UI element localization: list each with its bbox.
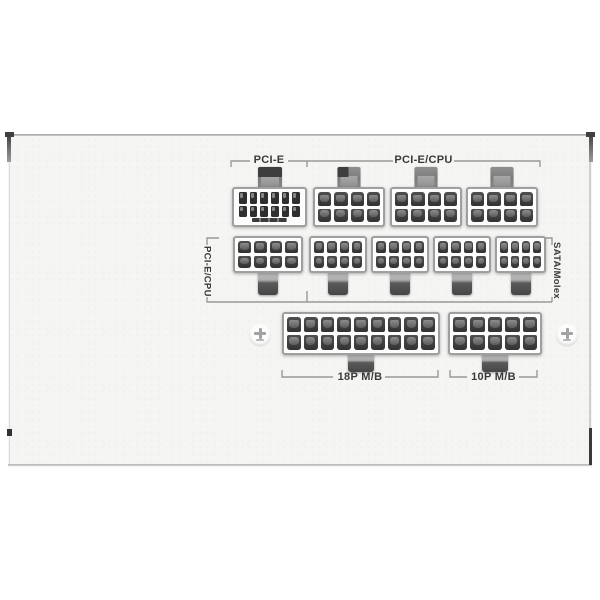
pin-socket <box>337 317 351 332</box>
pin-socket <box>520 209 533 223</box>
pin-socket <box>376 241 386 253</box>
pcie-12pin-socket-latch <box>258 167 282 188</box>
pin-socket <box>395 209 408 223</box>
pin-socket <box>470 335 484 350</box>
pcie-12pin-socket-body <box>232 187 307 227</box>
pin-socket <box>327 241 337 253</box>
pin-socket <box>371 335 385 350</box>
mb-10p-socket <box>448 312 542 355</box>
pin-socket <box>389 241 399 253</box>
pin-socket <box>404 335 418 350</box>
sata-molex-8pin-socket-1-body <box>309 236 367 273</box>
sata-molex-8pin-socket-1 <box>309 236 367 273</box>
pin-socket <box>287 335 301 350</box>
pin-socket <box>522 241 530 253</box>
pin-socket <box>520 192 533 206</box>
pin-socket <box>444 209 457 223</box>
mb-18p-socket <box>282 312 440 355</box>
pcie-cpu-8pin-socket-3-body <box>466 187 538 227</box>
sata-molex-8pin-socket-2-pin-grid <box>376 241 424 268</box>
pin-socket <box>504 192 517 206</box>
pcie-cpu-8pin-socket-2 <box>390 187 462 227</box>
pin-socket <box>388 335 402 350</box>
pin-socket <box>285 241 298 253</box>
mb-10p-socket-body <box>448 312 542 355</box>
pin-socket <box>487 192 500 206</box>
pin-socket <box>321 335 335 350</box>
pin-socket <box>388 317 402 332</box>
pin-socket <box>304 317 318 332</box>
pin-socket <box>371 317 385 332</box>
sata-molex-8pin-socket-2 <box>371 236 429 273</box>
pcie-cpu-8pin-socket-4 <box>233 236 303 273</box>
pin-socket <box>488 335 502 350</box>
pin-socket <box>451 241 461 253</box>
pin-socket <box>314 256 324 268</box>
pin-socket <box>511 241 519 253</box>
pin-socket <box>270 256 283 268</box>
pin-socket <box>260 206 268 218</box>
pin-socket <box>500 256 508 268</box>
pin-socket <box>318 209 331 223</box>
pin-socket <box>334 192 347 206</box>
pcie-cpu-8pin-socket-1-latch <box>338 167 361 188</box>
pin-socket <box>414 256 424 268</box>
sata-molex-8pin-socket-1-pin-grid <box>314 241 362 268</box>
pin-socket <box>471 192 484 206</box>
pin-socket <box>367 209 380 223</box>
pin-socket <box>250 206 258 218</box>
mb-18p-socket-body <box>282 312 440 355</box>
pin-socket <box>414 241 424 253</box>
pcie-cpu-8pin-socket-4-body <box>233 236 303 273</box>
pin-socket <box>438 241 448 253</box>
pin-socket <box>354 317 368 332</box>
pin-socket <box>239 206 247 218</box>
pin-socket <box>464 241 474 253</box>
pin-socket <box>282 206 290 218</box>
pin-socket <box>464 256 474 268</box>
pin-socket <box>523 335 537 350</box>
pin-socket <box>402 241 412 253</box>
pin-socket <box>421 317 435 332</box>
pin-socket <box>376 256 386 268</box>
pin-socket <box>444 192 457 206</box>
pin-socket <box>285 256 298 268</box>
sense-slot <box>252 218 287 222</box>
screw-hole-left <box>249 324 271 346</box>
pin-socket <box>522 256 530 268</box>
sata-molex-8pin-socket-2-latch <box>390 272 410 295</box>
mb-10p-socket-pin-grid <box>453 317 537 350</box>
pin-socket <box>404 317 418 332</box>
pin-socket <box>367 192 380 206</box>
pin-socket <box>421 335 435 350</box>
pin-socket <box>476 256 486 268</box>
pin-socket <box>287 317 301 332</box>
pin-socket <box>453 335 467 350</box>
pin-socket <box>354 335 368 350</box>
pin-socket <box>340 241 350 253</box>
pin-socket <box>402 256 412 268</box>
pcie-12pin-socket <box>232 187 307 227</box>
sata-molex-8pin-socket-2-body <box>371 236 429 273</box>
pcie-cpu-8pin-socket-4-pin-grid <box>238 241 298 268</box>
pin-socket <box>511 256 519 268</box>
phillips-screw-cross-icon <box>256 339 264 341</box>
pin-socket <box>270 241 283 253</box>
pin-socket <box>238 241 251 253</box>
pin-socket <box>438 256 448 268</box>
pcie-12pin-socket-pin-grid <box>239 192 300 217</box>
psu-modular-panel-illustration: PCI-E PCI-E/CPU PCI-E/CPU SATA/Molex 18P… <box>0 0 600 600</box>
pcie-cpu-8pin-socket-1 <box>313 187 385 227</box>
pin-socket <box>254 241 267 253</box>
pin-socket <box>352 241 362 253</box>
pin-socket <box>451 256 461 268</box>
pin-socket <box>488 317 502 332</box>
pin-socket <box>337 335 351 350</box>
phillips-screw-cross-icon <box>254 332 266 335</box>
pin-socket <box>523 317 537 332</box>
pin-socket <box>500 241 508 253</box>
pin-socket <box>476 241 486 253</box>
pin-socket <box>254 256 267 268</box>
mb-18p-socket-latch <box>348 354 374 372</box>
pin-socket <box>314 241 324 253</box>
mb-18p-socket-pin-grid <box>287 317 435 350</box>
sata-molex-8pin-socket-1-latch <box>328 272 348 295</box>
pcie-cpu-8pin-socket-1-body <box>313 187 385 227</box>
sata-molex-8pin-socket-3-pin-grid <box>438 241 486 268</box>
pcie-cpu-8pin-socket-2-latch <box>415 167 438 188</box>
pin-socket <box>318 192 331 206</box>
pcie-cpu-8pin-socket-2-pin-grid <box>395 192 457 222</box>
pin-socket <box>411 192 424 206</box>
pin-socket <box>271 206 279 218</box>
pin-socket <box>292 206 300 218</box>
pin-socket <box>395 192 408 206</box>
pin-socket <box>352 256 362 268</box>
sata-molex-8pin-socket-4-body <box>495 236 546 273</box>
pin-socket <box>505 317 519 332</box>
pin-socket <box>351 192 364 206</box>
pin-socket <box>304 335 318 350</box>
pin-socket <box>533 256 541 268</box>
pin-socket <box>238 256 251 268</box>
sata-molex-8pin-socket-4-pin-grid <box>500 241 541 268</box>
pin-socket <box>351 209 364 223</box>
pcie-cpu-8pin-socket-4-latch <box>258 272 278 295</box>
pcie-cpu-8pin-socket-2-body <box>390 187 462 227</box>
sata-molex-8pin-socket-3-body <box>433 236 491 273</box>
pcie-cpu-8pin-socket-3-latch <box>491 167 514 188</box>
screw-hole-right <box>556 324 578 346</box>
pin-socket <box>428 209 441 223</box>
pcie-cpu-8pin-socket-3-pin-grid <box>471 192 533 222</box>
pin-socket <box>292 192 300 204</box>
pin-socket <box>327 256 337 268</box>
pin-socket <box>389 256 399 268</box>
pin-socket <box>504 209 517 223</box>
pin-socket <box>282 192 290 204</box>
pin-socket <box>505 335 519 350</box>
mb-10p-socket-latch <box>482 354 508 372</box>
pin-socket <box>340 256 350 268</box>
pin-socket <box>239 192 247 204</box>
pin-socket <box>271 192 279 204</box>
pin-socket <box>334 209 347 223</box>
pin-socket <box>453 317 467 332</box>
sata-molex-8pin-socket-3-latch <box>452 272 472 295</box>
sata-molex-8pin-socket-4-latch <box>511 272 531 295</box>
pin-socket <box>428 192 441 206</box>
pcie-cpu-8pin-socket-3 <box>466 187 538 227</box>
pin-socket <box>487 209 500 223</box>
sata-molex-8pin-socket-3 <box>433 236 491 273</box>
pin-socket <box>471 209 484 223</box>
phillips-screw-cross-icon <box>561 332 573 335</box>
phillips-screw-cross-icon <box>563 339 571 341</box>
pcie-cpu-8pin-socket-1-pin-grid <box>318 192 380 222</box>
pin-socket <box>260 192 268 204</box>
pin-socket <box>533 241 541 253</box>
pin-socket <box>250 192 258 204</box>
pin-socket <box>470 317 484 332</box>
pin-socket <box>321 317 335 332</box>
sata-molex-8pin-socket-4 <box>495 236 546 273</box>
pin-socket <box>411 209 424 223</box>
connector-layer <box>0 0 600 600</box>
